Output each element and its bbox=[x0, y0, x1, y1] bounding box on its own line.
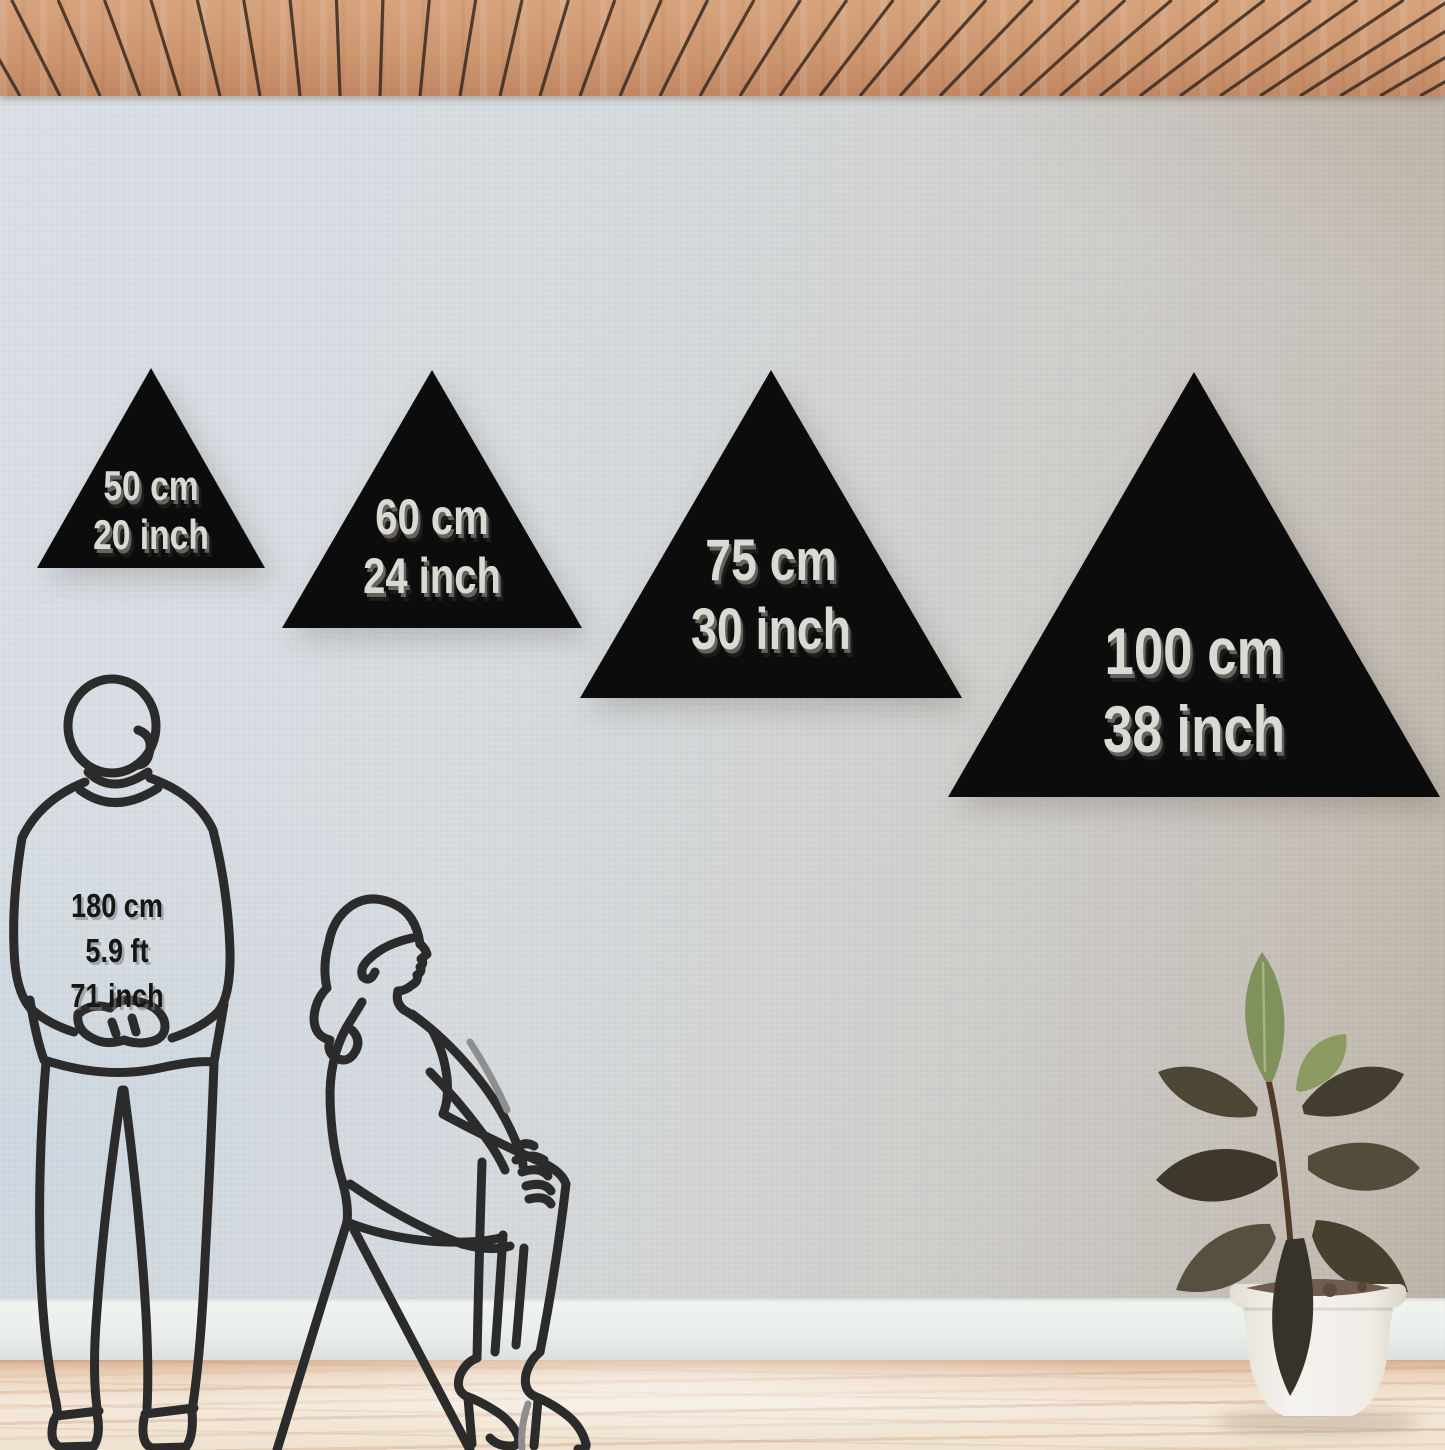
size-75-inch-text: 30 inch bbox=[618, 596, 924, 664]
size-label-75cm: 75 cm 30 inch bbox=[580, 527, 962, 664]
size-triangle-100cm-wrap: 100 cm 38 inch bbox=[948, 372, 1440, 797]
size-50-cm-text: 50 cm bbox=[60, 461, 242, 511]
size-label-60cm: 60 cm 24 inch bbox=[282, 488, 582, 606]
size-75-cm-text: 75 cm bbox=[618, 527, 924, 595]
reference-height-inch: 71 inch bbox=[52, 974, 182, 1019]
reference-height-ft: 5.9 ft bbox=[52, 929, 182, 974]
size-triangle-50cm-wrap: 50 cm 20 inch bbox=[37, 368, 265, 568]
size-triangle-50cm: 50 cm 20 inch bbox=[37, 368, 265, 568]
scene: 50 cm 20 inch 60 cm 24 inch 75 cm 30 inc… bbox=[0, 0, 1445, 1450]
ceiling-wood-slats bbox=[0, 0, 1445, 96]
size-60-cm-text: 60 cm bbox=[312, 488, 552, 547]
size-100-inch-text: 38 inch bbox=[997, 691, 1391, 769]
size-60-inch-text: 24 inch bbox=[312, 547, 552, 606]
reference-height-label: 180 cm 5.9 ft 71 inch bbox=[38, 884, 196, 1019]
size-label-100cm: 100 cm 38 inch bbox=[948, 613, 1440, 769]
wood-floor bbox=[0, 1360, 1445, 1450]
size-triangle-60cm: 60 cm 24 inch bbox=[282, 370, 582, 628]
size-triangle-100cm: 100 cm 38 inch bbox=[948, 372, 1440, 797]
size-triangle-75cm-wrap: 75 cm 30 inch bbox=[580, 370, 962, 698]
size-50-inch-text: 20 inch bbox=[60, 510, 242, 560]
reference-height-cm: 180 cm bbox=[52, 884, 182, 929]
ceiling-slat-lines bbox=[0, 0, 1445, 96]
size-100-cm-text: 100 cm bbox=[997, 613, 1391, 691]
size-label-50cm: 50 cm 20 inch bbox=[37, 461, 265, 560]
size-triangle-75cm: 75 cm 30 inch bbox=[580, 370, 962, 698]
size-triangle-60cm-wrap: 60 cm 24 inch bbox=[282, 370, 582, 628]
baseboard bbox=[0, 1298, 1445, 1360]
